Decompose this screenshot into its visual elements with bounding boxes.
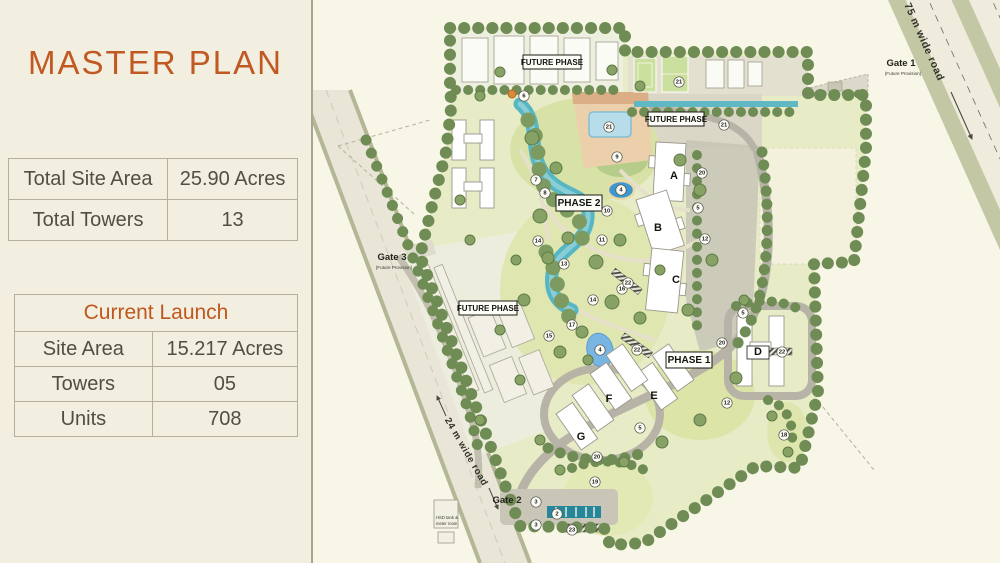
phase-label: FUTURE PHASE <box>457 304 520 313</box>
phase-label: PHASE 2 <box>558 198 601 209</box>
marker-number: 20 <box>719 340 725 346</box>
phase-label: FUTURE PHASE <box>645 115 708 124</box>
launch-value: 15.217 Acres <box>152 332 297 367</box>
tower-label-E: E <box>650 390 657 402</box>
gate-subtext: (Future Provision) <box>376 265 413 270</box>
gate-name: Gate 3 <box>377 252 406 263</box>
launch-label: Site Area <box>15 332 153 367</box>
open-future-field <box>760 148 856 264</box>
marker-number: 21 <box>676 79 683 85</box>
tower-label-F: F <box>606 393 613 405</box>
page-title: MASTER PLAN <box>0 44 311 82</box>
gate-subtext: (Future Provision) <box>885 71 922 76</box>
marker-number: 17 <box>569 322 575 328</box>
gate-name: Gate 1 <box>886 58 916 69</box>
marker-number: 15 <box>546 333 553 339</box>
utility-annotation: HSD tank & <box>436 515 458 520</box>
marker-number: 20 <box>699 170 705 176</box>
master-plan-slide: FUTURE PHASEFUTURE PHASEFUTURE PHASEPHAS… <box>0 0 1000 563</box>
marker-number: 23 <box>569 527 576 533</box>
site-summary-table: Total Site Area 25.90 Acres Total Towers… <box>8 158 298 241</box>
marker-number: 22 <box>625 280 631 286</box>
marker-number: 14 <box>535 238 542 244</box>
table-row: Site Area 15.217 Acres <box>15 332 298 367</box>
table-row: Total Site Area 25.90 Acres <box>9 159 298 200</box>
info-panel: MASTER PLAN Total Site Area 25.90 Acres … <box>0 0 313 563</box>
launch-label: Towers <box>15 367 153 402</box>
summary-value: 13 <box>168 200 298 241</box>
marker-number: 21 <box>721 122 728 128</box>
marker-number: 7 <box>534 177 537 183</box>
launch-table-header: Current Launch <box>15 295 298 332</box>
table-row: Towers 05 <box>15 367 298 402</box>
summary-label: Total Site Area <box>9 159 168 200</box>
marker-number: 14 <box>590 297 597 303</box>
summary-value: 25.90 Acres <box>168 159 298 200</box>
marker-number: 13 <box>561 261 568 267</box>
marker-number: 18 <box>781 432 788 438</box>
tower-label-G: G <box>577 431 586 443</box>
tower-label-D: D <box>754 346 762 358</box>
annotations: HSD tank &meter room <box>436 515 458 526</box>
marker-number: 2 <box>555 511 558 517</box>
marker-number: 21 <box>606 124 613 130</box>
marker-number: 19 <box>592 479 599 485</box>
table-row: Units 708 <box>15 402 298 437</box>
table-row: Total Towers 13 <box>9 200 298 241</box>
launch-value: 708 <box>152 402 297 437</box>
tower-label-C: C <box>672 274 680 286</box>
marker-number: 12 <box>724 400 730 406</box>
launch-value: 05 <box>152 367 297 402</box>
phase-label: PHASE 1 <box>668 355 711 366</box>
utility-annotation: meter room <box>436 521 458 526</box>
tower-label-A: A <box>670 170 678 182</box>
current-launch-table: Current Launch Site Area 15.217 Acres To… <box>14 294 298 437</box>
play-structure <box>508 90 516 98</box>
marker-number: 20 <box>594 454 600 460</box>
marker-number: 22 <box>634 347 640 353</box>
marker-number: 10 <box>604 208 610 214</box>
phase-label: FUTURE PHASE <box>521 58 584 67</box>
marker-number: 12 <box>702 236 708 242</box>
tower-label-B: B <box>654 222 662 234</box>
summary-label: Total Towers <box>9 200 168 241</box>
table-row: Current Launch <box>15 295 298 332</box>
gate-name: Gate 2 <box>492 495 521 506</box>
marker-number: 11 <box>599 237 606 243</box>
marker-number: 22 <box>779 349 785 355</box>
launch-label: Units <box>15 402 153 437</box>
